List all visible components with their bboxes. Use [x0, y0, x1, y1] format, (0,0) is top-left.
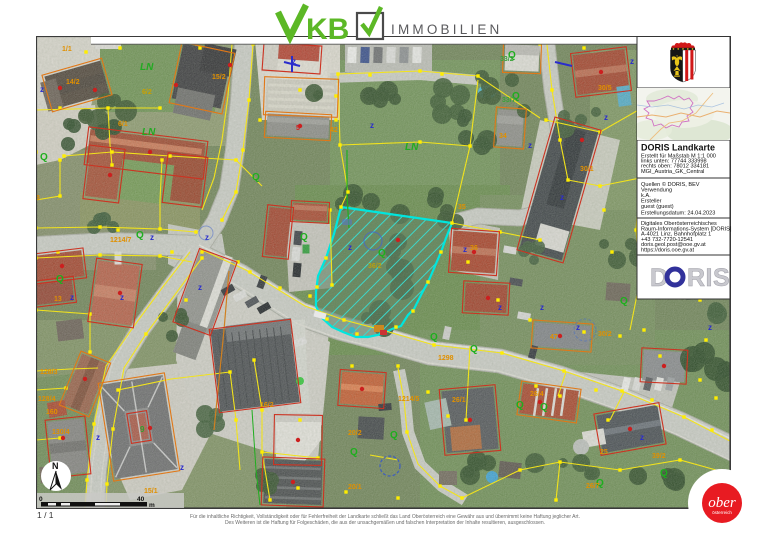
svg-text:36: 36: [470, 245, 478, 252]
svg-text:Q: Q: [136, 230, 144, 241]
svg-text:30/2: 30/2: [598, 331, 612, 338]
svg-text:15/2: 15/2: [212, 74, 226, 81]
svg-text:40: 40: [137, 496, 145, 503]
svg-text:LN: LN: [405, 142, 419, 153]
svg-text:m: m: [149, 502, 155, 509]
svg-text:6/1: 6/1: [118, 121, 128, 128]
svg-text:47: 47: [550, 334, 558, 341]
svg-text:6/2: 6/2: [142, 89, 152, 96]
svg-text:N: N: [52, 461, 59, 471]
svg-text:33/7: 33/7: [502, 97, 516, 104]
svg-text:Q: Q: [350, 447, 358, 458]
svg-text:128/4: 128/4: [38, 396, 56, 403]
svg-text:Q: Q: [40, 152, 48, 163]
svg-text:z: z: [150, 233, 154, 242]
svg-text:0: 0: [39, 496, 43, 503]
svg-text:35: 35: [458, 204, 466, 211]
svg-text:DORIS Landkarte: DORIS Landkarte: [641, 143, 715, 153]
svg-text:42: 42: [330, 127, 338, 134]
svg-text:Q: Q: [660, 468, 668, 479]
svg-text:z: z: [40, 85, 44, 94]
svg-text:1214/5: 1214/5: [398, 396, 420, 403]
svg-text:Erstellungsdatum: 24.04.2023: Erstellungsdatum: 24.04.2023: [641, 211, 715, 217]
svg-text:9: 9: [140, 425, 145, 434]
svg-text:Des Weiteren ist die Haftung f: Des Weiteren ist die Haftung für Folgesc…: [225, 520, 545, 526]
svg-text:26/7: 26/7: [586, 483, 600, 490]
svg-text:1/1: 1/1: [62, 46, 72, 53]
svg-text:13: 13: [54, 296, 62, 303]
svg-text:Q: Q: [620, 296, 628, 307]
svg-text:LN: LN: [140, 62, 154, 73]
svg-text:Q: Q: [252, 172, 260, 183]
svg-text:Q: Q: [378, 248, 386, 259]
svg-text:IMMOBILIEN: IMMOBILIEN: [391, 22, 503, 37]
svg-text:RIS: RIS: [687, 264, 730, 292]
svg-text:5: 5: [296, 125, 300, 132]
svg-text:z: z: [70, 293, 74, 302]
svg-text:https://doris.ooe.gv.at: https://doris.ooe.gv.at: [641, 248, 695, 254]
svg-text:26/4: 26/4: [530, 391, 544, 398]
svg-text:Q: Q: [540, 402, 548, 413]
svg-text:z: z: [180, 463, 184, 472]
svg-text:z: z: [630, 57, 634, 66]
svg-text:z: z: [348, 243, 352, 252]
svg-text:Q: Q: [430, 332, 438, 343]
svg-text:33/2: 33/2: [500, 56, 514, 63]
svg-text:z: z: [498, 303, 502, 312]
svg-text:Q: Q: [516, 400, 524, 411]
svg-text:österreich: österreich: [712, 510, 732, 515]
svg-text:Q: Q: [300, 232, 308, 243]
svg-text:z: z: [540, 303, 544, 312]
svg-text:16/2: 16/2: [260, 402, 274, 409]
svg-text:30/1: 30/1: [580, 166, 594, 173]
svg-text:26/1: 26/1: [452, 397, 466, 404]
svg-text:z: z: [205, 233, 209, 242]
svg-text:20/1: 20/1: [348, 484, 362, 491]
svg-text:14/2: 14/2: [66, 79, 80, 86]
svg-text:Q: Q: [390, 430, 398, 441]
svg-text:30/5: 30/5: [598, 85, 612, 92]
svg-text:LN: LN: [142, 127, 156, 138]
svg-text:34: 34: [499, 133, 507, 140]
svg-text:ober: ober: [708, 495, 736, 511]
svg-text:z: z: [198, 283, 202, 292]
svg-text:z: z: [576, 323, 580, 332]
svg-text:z: z: [604, 113, 608, 122]
svg-text:KB: KB: [306, 13, 349, 46]
svg-text:MGI_Austria_GK_Central: MGI_Austria_GK_Central: [641, 169, 704, 175]
svg-text:160: 160: [46, 409, 58, 416]
svg-text:Q: Q: [56, 274, 64, 285]
svg-text:128/3: 128/3: [40, 369, 58, 376]
svg-text:20/2: 20/2: [348, 430, 362, 437]
svg-text:1298: 1298: [438, 355, 454, 362]
svg-text:z: z: [560, 193, 564, 202]
svg-text:130/4: 130/4: [52, 429, 70, 436]
svg-text:25: 25: [600, 449, 608, 456]
svg-text:z: z: [96, 433, 100, 442]
svg-text:Q: Q: [470, 344, 478, 355]
svg-text:39/2: 39/2: [652, 453, 666, 460]
svg-text:1 / 1: 1 / 1: [37, 510, 54, 520]
svg-text:36/2: 36/2: [368, 263, 382, 270]
svg-text:z: z: [120, 293, 124, 302]
svg-text:z: z: [370, 121, 374, 130]
svg-text:guest (guest): guest (guest): [641, 204, 674, 210]
svg-text:z: z: [640, 433, 644, 442]
svg-text:1214/7: 1214/7: [110, 237, 132, 244]
svg-text:z: z: [528, 141, 532, 150]
svg-text:z: z: [708, 323, 712, 332]
svg-text:z: z: [463, 245, 467, 254]
